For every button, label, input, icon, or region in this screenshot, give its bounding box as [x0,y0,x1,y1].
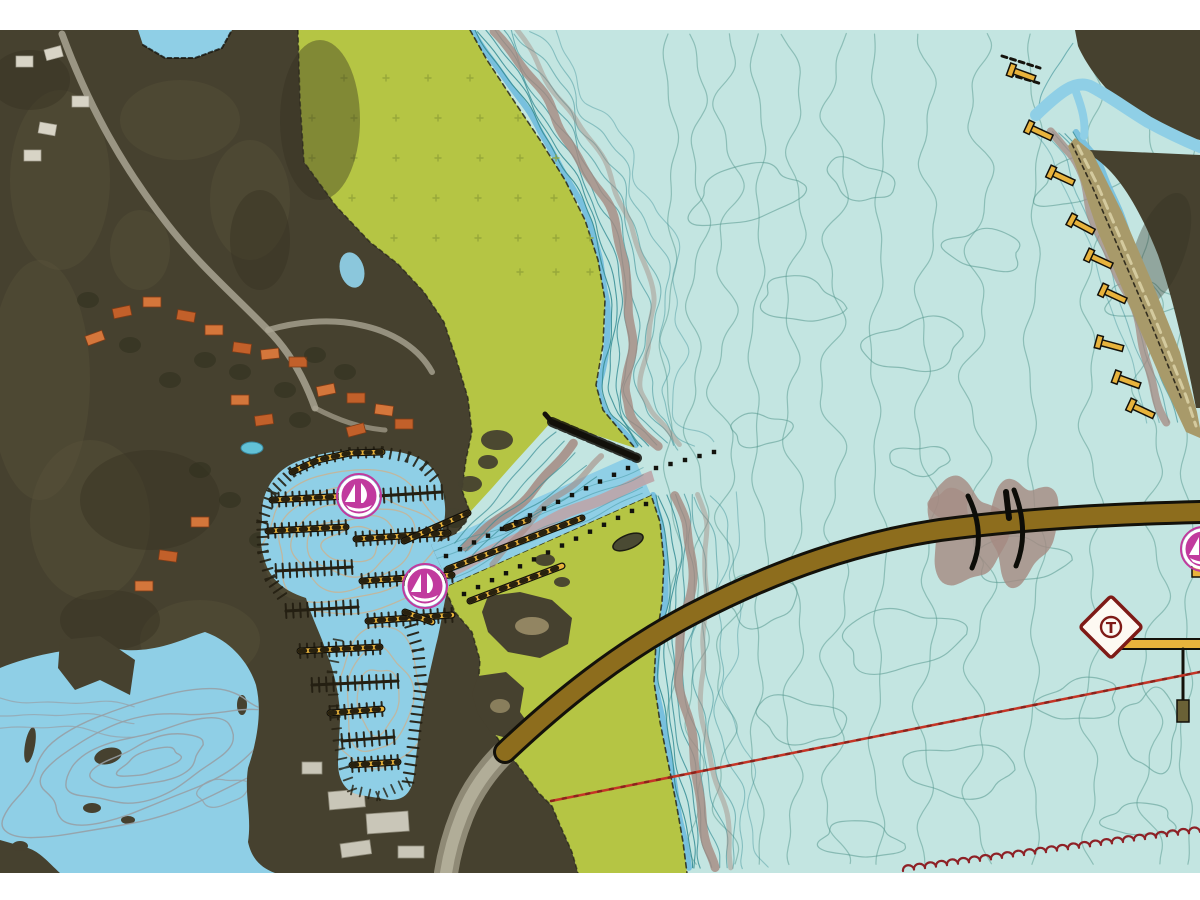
marina-sailboat-icon[interactable] [337,474,381,518]
chart-page: T [0,0,1200,900]
nautical-chart-map[interactable]: T [0,0,1200,900]
tower-label: T [1106,619,1117,637]
marina-sailboat-icon[interactable] [403,564,447,608]
